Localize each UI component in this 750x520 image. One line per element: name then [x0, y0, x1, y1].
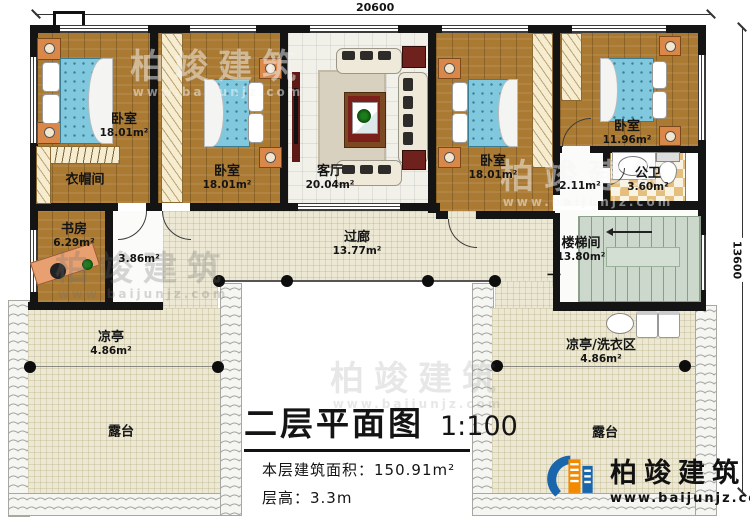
title-block: 二层平面图 1:100 本层建筑面积：150.91m² 层高：3.3m [244, 397, 518, 508]
sofa-cushion [342, 51, 355, 60]
pillow [652, 91, 667, 119]
lamp-icon [44, 127, 55, 138]
room-label-living: 客厅 20.04m² [306, 165, 355, 191]
pillow [42, 94, 60, 124]
column-dot [422, 275, 434, 287]
window [698, 55, 706, 140]
logo-text: 柏竣建筑 [610, 451, 750, 490]
top-dimension-line [35, 14, 712, 15]
floor-area-label: 本层建筑面积：150.91m² [262, 459, 518, 480]
column-dot [212, 361, 224, 373]
stair-down-label: 下 [547, 274, 561, 290]
nightstand [659, 36, 681, 56]
window [60, 25, 148, 33]
room-label-stairwell: 楼梯间 13.80m² [557, 237, 606, 263]
nightstand [37, 38, 61, 60]
corridor-right-connector [495, 281, 553, 308]
window [298, 203, 400, 211]
right-dimension-label: 13600 [731, 238, 744, 282]
nightstand [438, 58, 461, 79]
sofa-cushion [378, 51, 391, 60]
left-wing-divider [28, 366, 220, 367]
column-dot [489, 275, 501, 287]
scale-label: 1:100 [440, 411, 518, 442]
logo-icon [546, 450, 602, 506]
lamp-icon [44, 43, 55, 54]
sofa-cushion [360, 165, 373, 174]
sofa-cushion [378, 165, 391, 174]
room-label-cloakroom: 衣帽间 [65, 174, 104, 189]
laundry-sink-icon [606, 313, 634, 334]
side-table [402, 46, 426, 68]
window [310, 25, 398, 33]
nightstand [659, 126, 681, 146]
desk-plant-icon [82, 259, 93, 270]
nightstand [259, 58, 282, 79]
side-table [402, 150, 426, 170]
column-dot [24, 361, 36, 373]
left-parapet-bottom [8, 493, 242, 516]
window [442, 25, 528, 33]
closet-bedroom2 [161, 33, 183, 203]
window [572, 25, 666, 33]
stair-arrowhead-icon [606, 228, 613, 236]
wall-hleft-c [190, 203, 288, 211]
room-label-bedroom2: 卧室 18.01m² [203, 165, 252, 191]
floor-height-label: 层高：3.3m [262, 487, 518, 508]
bed-sheet [498, 79, 518, 147]
washing-machine-icon [658, 311, 680, 338]
title-underline [244, 449, 470, 452]
column-dot [281, 275, 293, 287]
right-wing-divider [492, 366, 695, 367]
nightstand [438, 147, 461, 168]
corridor-left-connector [163, 281, 218, 310]
stair-direction-arrow [612, 231, 652, 233]
pillow [248, 82, 264, 112]
room-label-terrace-left: 露台 [108, 426, 134, 441]
wall-hleft-b [146, 203, 162, 211]
sofa-cushion [403, 96, 413, 109]
wall-hleft-a [30, 203, 118, 211]
tv-icon [294, 88, 298, 144]
room-label-bedroom1: 卧室 18.01m² [100, 113, 149, 139]
sofa-cushion [403, 78, 413, 91]
room-label-hallway: 2.11m² [559, 181, 600, 193]
wall-south-study [28, 302, 163, 310]
room-label-open-area: 3.86m² [118, 254, 159, 266]
room-hallway-floor [560, 146, 603, 206]
room-label-pavilion-left: 凉亭 4.86m² [90, 331, 131, 357]
pillow [42, 62, 60, 92]
closet-bedroom4 [561, 33, 582, 101]
wall-bed3-south-b [476, 211, 555, 219]
washing-machine-icon [636, 311, 658, 338]
cloakroom-wardrobe-v [36, 146, 51, 204]
nightstand [259, 147, 282, 168]
desk-chair [50, 263, 66, 279]
room-label-bathroom: 公卫 3.60m² [627, 167, 668, 193]
colonnade-line [218, 280, 497, 282]
stair-landing [606, 247, 680, 267]
room-label-corridor: 过廊 13.77m² [333, 231, 382, 257]
wall-bed3-south-a [436, 211, 448, 219]
pillow [248, 113, 264, 143]
wall-bed1-bed2 [150, 31, 158, 211]
column-dot [679, 360, 691, 372]
room-label-bedroom4: 卧室 11.96m² [603, 120, 652, 146]
company-logo: 柏竣建筑 www.baijunjz.com [546, 450, 750, 506]
plant-icon [357, 109, 371, 123]
pillow [652, 61, 667, 89]
lamp-icon [265, 152, 276, 163]
lamp-icon [444, 152, 455, 163]
closet-bedroom3 [532, 33, 553, 168]
room-label-bedroom3: 卧室 18.01m² [469, 155, 518, 181]
nightstand [37, 122, 61, 144]
window [190, 25, 256, 33]
room-label-terrace-right: 露台 [592, 427, 618, 442]
sofa-cushion [403, 132, 413, 145]
wall-bed4-south-a [553, 146, 562, 153]
lamp-icon [444, 63, 455, 74]
wall-bath-divider-a [603, 150, 610, 168]
wall-bed3-bed4-a [553, 31, 560, 150]
logo-website: www.baijunjz.com [610, 491, 750, 506]
room-label-laundry-pavilion: 凉亭/洗衣区 4.86m² [566, 339, 636, 365]
cloakroom-wardrobe-h [49, 146, 120, 164]
sofa-cushion [360, 51, 373, 60]
wall-study-open [105, 211, 113, 306]
pillow [452, 82, 468, 112]
floor-plan: 20600 13600 [0, 0, 750, 520]
wall-living-bed3 [428, 31, 436, 213]
column-dot [491, 360, 503, 372]
column-dot [213, 275, 225, 287]
wall-south-stair [553, 302, 706, 311]
left-parapet-left [8, 300, 30, 517]
lamp-icon [665, 41, 676, 52]
lamp-icon [665, 131, 676, 142]
top-dimension-label: 20600 [352, 1, 398, 14]
pillow [452, 113, 468, 143]
left-parapet-right [220, 283, 242, 516]
lamp-icon [265, 63, 276, 74]
sofa-cushion [403, 114, 413, 127]
room-label-study: 书房 6.29m² [53, 223, 94, 249]
wall-stair-top [598, 201, 706, 210]
page-title: 二层平面图 [244, 397, 424, 445]
